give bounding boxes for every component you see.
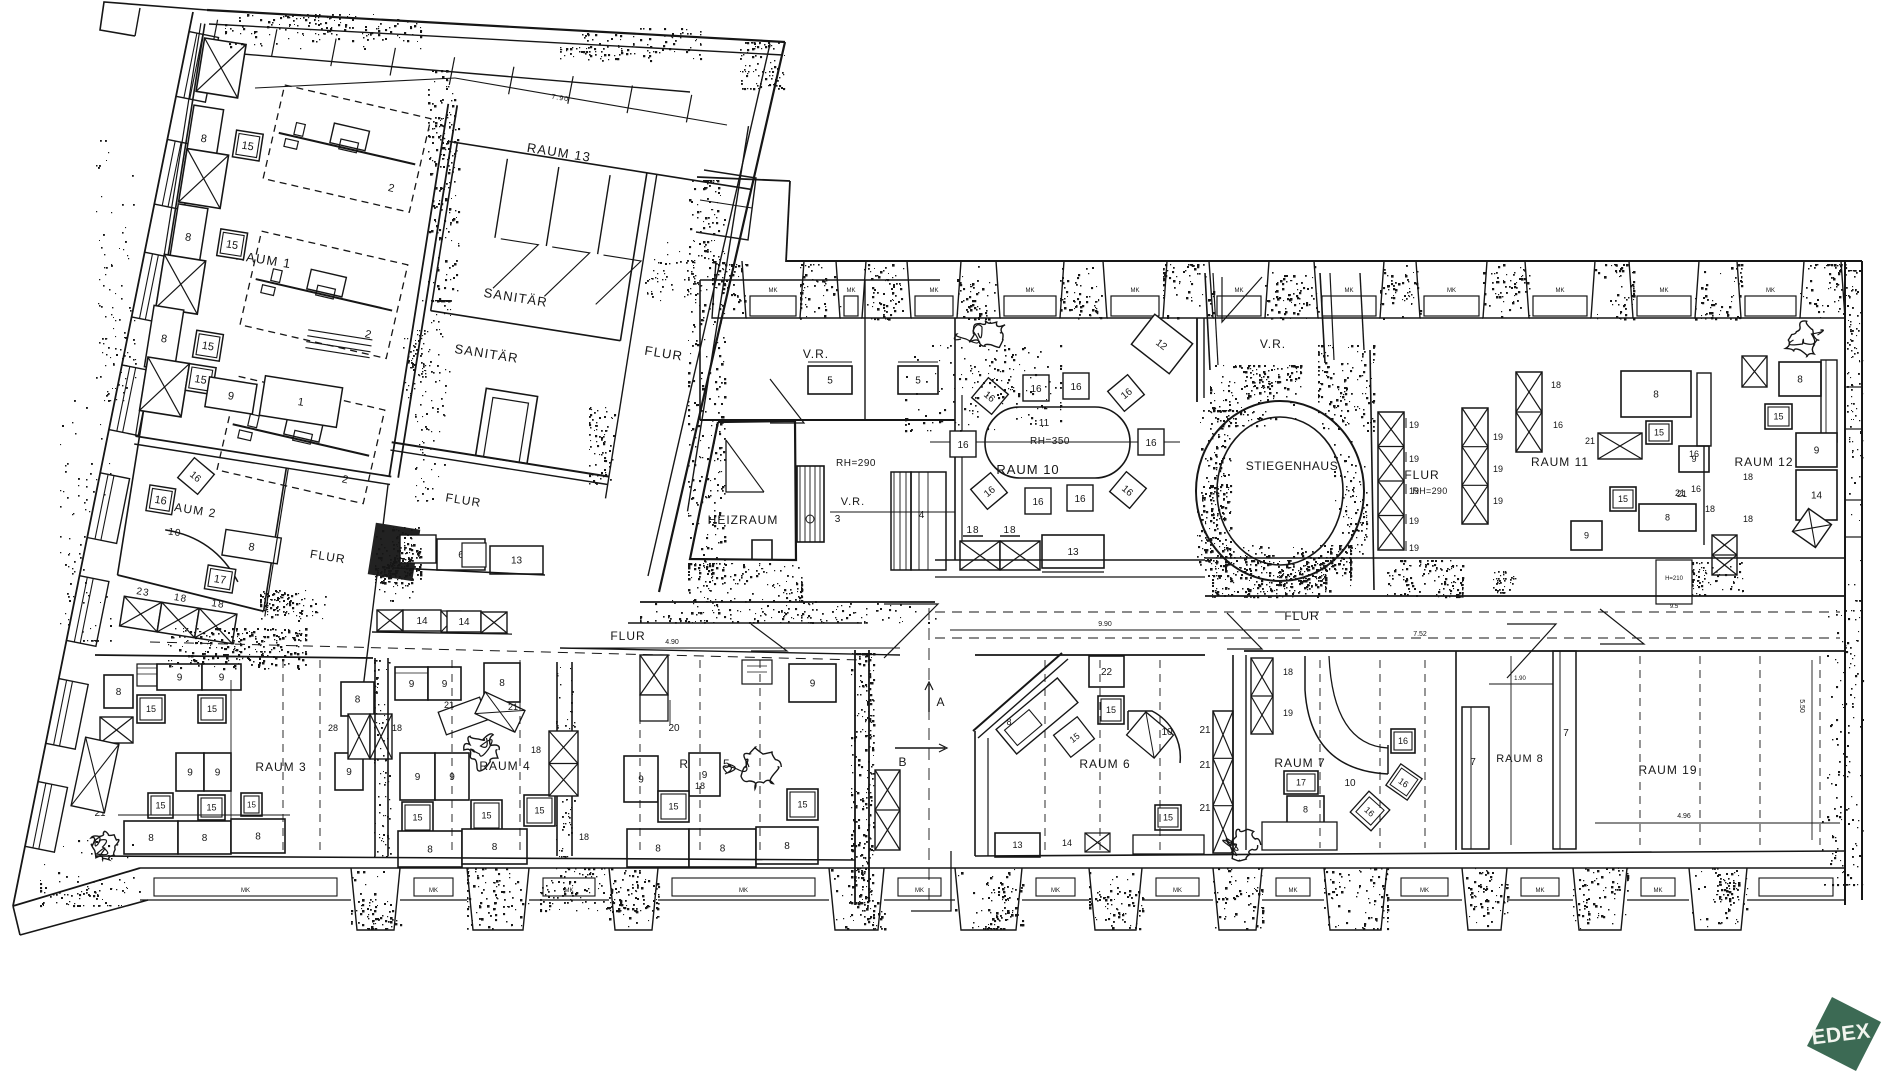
svg-text:HEIZRAUM: HEIZRAUM <box>708 513 779 527</box>
svg-text:15: 15 <box>1618 494 1628 504</box>
svg-text:9: 9 <box>215 768 221 779</box>
svg-text:13: 13 <box>511 556 523 567</box>
svg-text:1.90: 1.90 <box>1514 676 1526 682</box>
svg-text:18: 18 <box>1551 380 1561 390</box>
svg-text:B: B <box>898 755 907 769</box>
svg-text:19: 19 <box>1493 464 1503 474</box>
svg-text:9: 9 <box>810 679 816 690</box>
svg-text:RAUM 19: RAUM 19 <box>1638 763 1697 777</box>
svg-text:8: 8 <box>148 833 154 844</box>
svg-text:8: 8 <box>492 842 498 853</box>
svg-text:8: 8 <box>655 844 661 855</box>
svg-text:MK: MK <box>429 888 438 894</box>
svg-text:3: 3 <box>835 514 842 525</box>
svg-text:9: 9 <box>442 679 448 690</box>
svg-text:18: 18 <box>966 525 979 536</box>
svg-text:19: 19 <box>1283 708 1293 718</box>
svg-text:18: 18 <box>579 832 589 842</box>
svg-text:FLUR: FLUR <box>1284 609 1319 623</box>
svg-text:7: 7 <box>1563 728 1569 739</box>
svg-text:8: 8 <box>784 841 790 852</box>
svg-text:8: 8 <box>1653 390 1659 401</box>
svg-text:22: 22 <box>1101 667 1113 678</box>
svg-text:13: 13 <box>1012 840 1022 850</box>
svg-text:MK: MK <box>930 288 939 294</box>
svg-text:15: 15 <box>194 373 208 387</box>
svg-text:7.52: 7.52 <box>1413 631 1427 638</box>
svg-text:15: 15 <box>207 704 217 714</box>
svg-text:15: 15 <box>481 811 491 821</box>
svg-text:MK: MK <box>1051 888 1060 894</box>
svg-text:MK: MK <box>1420 888 1429 894</box>
svg-text:RAUM 11: RAUM 11 <box>1531 455 1589 469</box>
svg-text:23: 23 <box>136 586 151 599</box>
svg-text:14: 14 <box>1062 838 1072 848</box>
svg-text:15: 15 <box>534 806 544 816</box>
svg-text:MK: MK <box>1654 888 1663 894</box>
svg-text:19: 19 <box>1409 420 1419 430</box>
svg-text:17: 17 <box>213 573 227 587</box>
svg-text:21: 21 <box>1199 725 1211 736</box>
svg-text:18: 18 <box>1743 472 1753 482</box>
svg-text:RH=290: RH=290 <box>836 458 876 469</box>
svg-text:21: 21 <box>1677 489 1687 499</box>
svg-text:14: 14 <box>1811 491 1823 502</box>
svg-text:15: 15 <box>1163 813 1173 823</box>
svg-text:16: 16 <box>1070 382 1082 393</box>
svg-text:9: 9 <box>409 679 415 690</box>
svg-text:15: 15 <box>155 801 165 811</box>
svg-text:8: 8 <box>355 695 361 706</box>
svg-text:8: 8 <box>427 845 433 856</box>
svg-text:18: 18 <box>173 592 188 605</box>
svg-text:A: A <box>936 695 945 709</box>
svg-text:16: 16 <box>1691 484 1701 494</box>
svg-text:MK: MK <box>1345 288 1354 294</box>
svg-text:9: 9 <box>177 673 183 684</box>
svg-text:10: 10 <box>1161 727 1173 738</box>
svg-text:21: 21 <box>444 700 454 710</box>
svg-text:9.5: 9.5 <box>1670 604 1679 610</box>
svg-text:15: 15 <box>1773 412 1783 422</box>
svg-text:V.R.: V.R. <box>841 496 865 508</box>
svg-text:STIEGENHAUS: STIEGENHAUS <box>1246 459 1339 473</box>
svg-text:16: 16 <box>154 494 168 508</box>
svg-text:MK: MK <box>1660 288 1669 294</box>
svg-text:16: 16 <box>1032 497 1044 508</box>
svg-text:9: 9 <box>1584 531 1589 541</box>
svg-text:MK: MK <box>1173 888 1182 894</box>
svg-text:15: 15 <box>201 340 215 354</box>
svg-text:15: 15 <box>225 238 239 252</box>
svg-text:16: 16 <box>1553 420 1563 430</box>
svg-text:RAUM 3: RAUM 3 <box>255 760 306 774</box>
svg-text:RAUM 8: RAUM 8 <box>1496 753 1544 765</box>
svg-text:18: 18 <box>531 745 541 755</box>
svg-text:16: 16 <box>957 440 969 451</box>
svg-text:16: 16 <box>1689 449 1699 459</box>
svg-text:19: 19 <box>1409 454 1419 464</box>
svg-text:5: 5 <box>915 376 921 387</box>
svg-text:14: 14 <box>416 616 428 627</box>
svg-text:19: 19 <box>1493 496 1503 506</box>
svg-text:V.R.: V.R. <box>803 347 829 361</box>
svg-text:MK: MK <box>769 288 778 294</box>
svg-text:11: 11 <box>1039 418 1050 429</box>
svg-text:MK: MK <box>1536 888 1545 894</box>
svg-text:8: 8 <box>202 833 208 844</box>
svg-text:FLUR: FLUR <box>1404 468 1439 482</box>
svg-text:MK: MK <box>915 888 924 894</box>
svg-text:4.96: 4.96 <box>1677 813 1691 820</box>
svg-text:5: 5 <box>827 376 833 387</box>
svg-text:MK: MK <box>1131 288 1140 294</box>
svg-text:MK: MK <box>847 288 856 294</box>
svg-text:8: 8 <box>255 832 261 843</box>
svg-text:8: 8 <box>116 687 122 698</box>
svg-text:21: 21 <box>1199 803 1211 814</box>
svg-text:15: 15 <box>146 704 156 714</box>
svg-text:9: 9 <box>1814 446 1820 457</box>
svg-text:15: 15 <box>1106 705 1116 715</box>
svg-text:MK: MK <box>1447 288 1456 294</box>
svg-text:18: 18 <box>392 723 402 733</box>
svg-text:8: 8 <box>499 678 505 689</box>
svg-text:19: 19 <box>1409 486 1419 496</box>
svg-text:8: 8 <box>1006 717 1011 727</box>
svg-text:9: 9 <box>702 770 708 781</box>
svg-text:16: 16 <box>1398 736 1408 746</box>
svg-text:28: 28 <box>328 723 338 733</box>
svg-text:21: 21 <box>508 702 518 712</box>
svg-text:15: 15 <box>247 800 256 809</box>
svg-text:8: 8 <box>720 844 726 855</box>
svg-text:V.R.: V.R. <box>1260 337 1286 351</box>
svg-text:H=210: H=210 <box>1665 576 1684 582</box>
svg-text:8: 8 <box>1665 513 1670 523</box>
svg-text:10: 10 <box>1344 778 1356 789</box>
svg-text:15: 15 <box>1654 428 1664 438</box>
svg-text:15: 15 <box>412 813 422 823</box>
svg-text:MK: MK <box>739 888 748 894</box>
svg-text:9.90: 9.90 <box>1098 621 1112 628</box>
svg-text:9: 9 <box>219 673 225 684</box>
svg-text:MK: MK <box>1235 288 1244 294</box>
svg-text:MK: MK <box>241 888 250 894</box>
svg-text:MK: MK <box>1556 288 1565 294</box>
svg-text:4.90: 4.90 <box>665 639 679 646</box>
svg-text:9: 9 <box>346 767 352 778</box>
svg-text:9: 9 <box>187 768 193 779</box>
svg-text:18: 18 <box>1743 514 1753 524</box>
svg-text:19: 19 <box>1493 432 1503 442</box>
svg-text:MK: MK <box>1026 288 1035 294</box>
svg-text:RAUM 6: RAUM 6 <box>1079 757 1130 771</box>
svg-text:19: 19 <box>1409 543 1419 553</box>
svg-text:14: 14 <box>458 617 470 628</box>
svg-text:FLUR: FLUR <box>610 629 645 643</box>
svg-text:RAUM 7: RAUM 7 <box>1274 756 1325 770</box>
svg-text:18: 18 <box>211 598 226 611</box>
svg-text:16: 16 <box>1074 494 1086 505</box>
svg-text:9: 9 <box>638 775 644 786</box>
svg-text:19: 19 <box>1409 516 1419 526</box>
svg-text:5.50: 5.50 <box>1798 699 1805 713</box>
svg-text:21: 21 <box>1585 436 1595 446</box>
svg-text:15: 15 <box>668 802 678 812</box>
svg-text:15: 15 <box>241 140 255 154</box>
svg-text:17: 17 <box>1296 778 1306 788</box>
svg-text:RAUM 12: RAUM 12 <box>1734 455 1793 469</box>
svg-text:16: 16 <box>1145 438 1157 449</box>
svg-text:MK: MK <box>1766 288 1775 294</box>
svg-text:18: 18 <box>1003 525 1016 536</box>
svg-text:13: 13 <box>1067 547 1079 558</box>
svg-text:MK: MK <box>1289 888 1298 894</box>
svg-text:15: 15 <box>206 803 216 813</box>
svg-text:18: 18 <box>1705 504 1715 514</box>
svg-text:8: 8 <box>1797 375 1803 386</box>
svg-text:15: 15 <box>797 800 807 810</box>
svg-text:8: 8 <box>1303 805 1308 815</box>
svg-text:18: 18 <box>1283 667 1293 677</box>
svg-text:9: 9 <box>415 772 421 783</box>
svg-text:21: 21 <box>1199 760 1211 771</box>
